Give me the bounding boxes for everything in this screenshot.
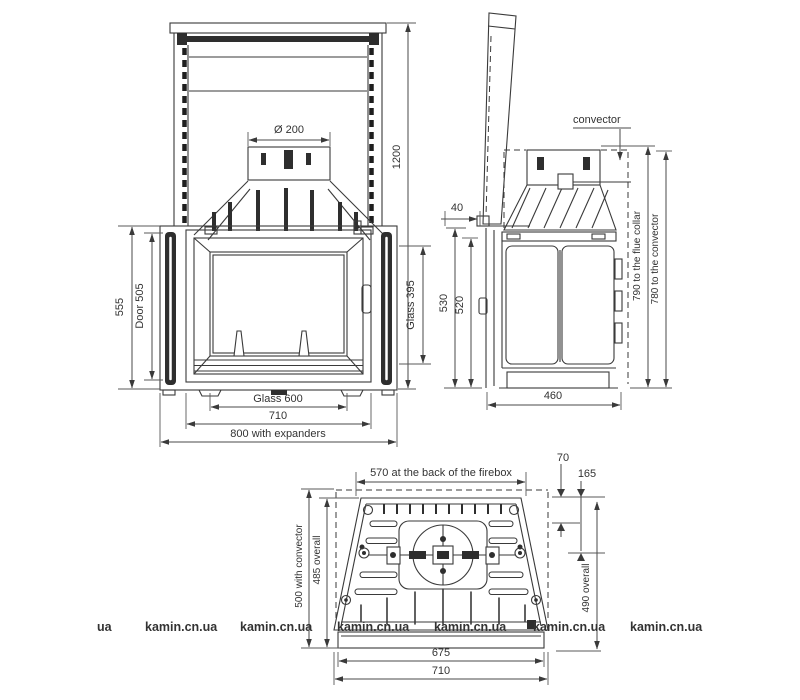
front-flue-diameter-label: Ø 200 (274, 124, 304, 136)
convector-label: convector (573, 114, 621, 126)
side-depth-label: 460 (544, 390, 562, 402)
side-door-gap-label: 40 (451, 202, 463, 214)
front-view: 555 Door 505 Ø 200 1200 Glass 395 Glass … (114, 23, 431, 447)
log-retainer-left (234, 331, 244, 356)
front-door-height-label: Door 505 (134, 283, 146, 328)
watermark: kamin.cn.ua (145, 620, 218, 634)
watermark: kamin.cn.ua (533, 620, 606, 634)
bottom-overall-right-label: 490 overall (581, 564, 592, 613)
vent-panel-back (562, 246, 614, 364)
watermark: kamin.cn.ua (630, 620, 703, 634)
bottom-back-width-label: 570 at the back of the firebox (370, 467, 512, 479)
watermark-partial: ua (97, 620, 113, 634)
damper-knob (558, 174, 573, 189)
technical-drawing: 555 Door 505 Ø 200 1200 Glass 395 Glass … (0, 0, 800, 700)
front-body-width-label: 710 (269, 410, 287, 422)
side-height-inner-label: 520 (454, 296, 466, 314)
watermarks: ua kamin.cn.ua kamin.cn.ua kamin.cn.ua k… (97, 620, 703, 634)
front-total-height-label: 1200 (391, 145, 403, 169)
bottom-flue-offset-back-label: 70 (557, 452, 569, 464)
side-flue-collar-height-label: 790 to the flue collar (632, 210, 643, 301)
bottom-front-width-label: 710 (432, 665, 450, 677)
bottom-flue-offset-center-label: 165 (578, 468, 596, 480)
side-open-door (477, 13, 516, 226)
front-glass-width-label: Glass 600 (253, 393, 303, 405)
side-height-outer-label: 530 (438, 294, 450, 312)
side-view: 40 convector 530 520 460 790 to the flue… (438, 13, 672, 410)
watermark: kamin.cn.ua (337, 620, 410, 634)
bottom-depth-convector-label: 500 with convector (294, 524, 305, 608)
bottom-depth-overall-label: 485 overall (312, 536, 323, 585)
watermark: kamin.cn.ua (240, 620, 313, 634)
diagram-canvas: 555 Door 505 Ø 200 1200 Glass 395 Glass … (0, 0, 800, 700)
front-height-label: 555 (114, 298, 126, 316)
front-glass-height-label: Glass 395 (405, 280, 417, 330)
side-convector-height-label: 780 to the convector (650, 213, 661, 304)
front-expander-width-label: 800 with expanders (230, 428, 326, 440)
front-firebox (160, 221, 397, 396)
log-retainer-right (299, 331, 309, 356)
bottom-base-width-label: 675 (432, 647, 450, 659)
watermark: kamin.cn.ua (434, 620, 507, 634)
vent-panel-front (506, 246, 558, 364)
bottom-view: 570 at the back of the firebox 500 with … (294, 452, 605, 685)
